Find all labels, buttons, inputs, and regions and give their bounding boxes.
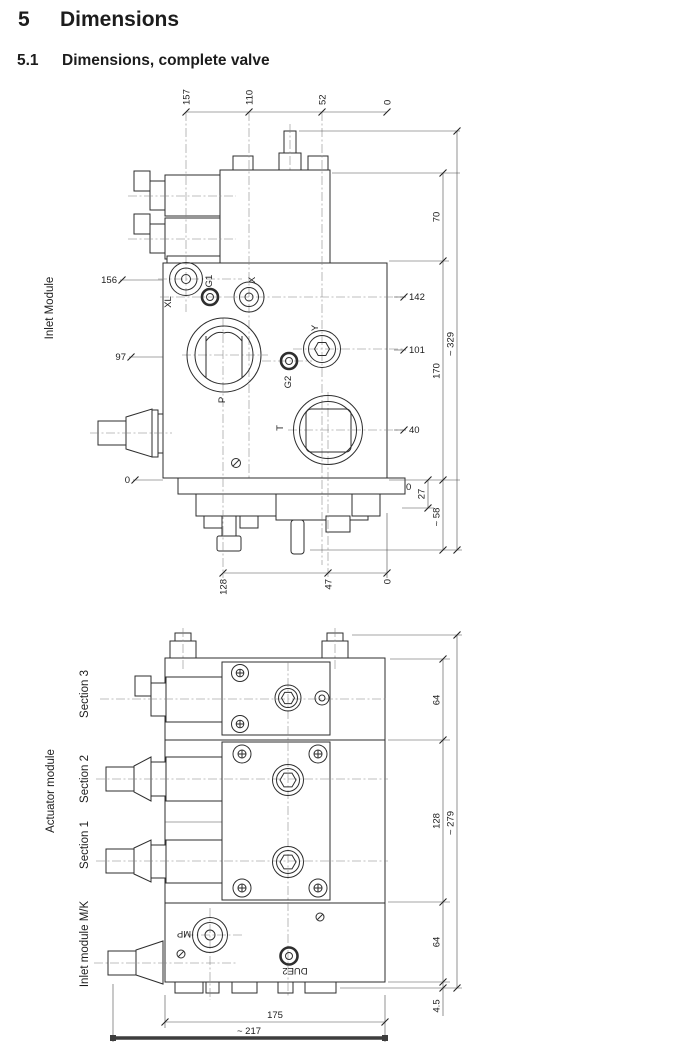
dim-label-70: 70: [432, 212, 443, 223]
solenoid-coil: [165, 175, 220, 216]
solenoid-coil: [165, 218, 220, 259]
dim-label-64-top: 64: [432, 695, 443, 706]
actuator-module-drawing: 64 128 ~ 279 64 4.5 175 ~ 217 MP DUE2 Ac…: [45, 628, 462, 1042]
pilot-block: [220, 170, 330, 263]
section3-label: Section 3: [79, 670, 91, 718]
bottom-plug: [240, 516, 258, 528]
inlet-module-drawing: 157 110 52 0 156 97 0 142 101 40 0 70 17…: [44, 89, 462, 595]
dim-label-64-bottom: 64: [432, 937, 443, 948]
top-plug: [233, 156, 253, 170]
dim-label-279: ~ 279: [446, 811, 457, 835]
dim-label-0-left: 0: [125, 475, 130, 486]
section1-label: Section 1: [79, 821, 91, 869]
module-label-actuator: Actuator module: [45, 749, 57, 833]
section2-label: Section 2: [79, 755, 91, 803]
main-housing: [163, 263, 387, 478]
bottom-plug: [326, 516, 350, 532]
port-label-due2: DUE2: [282, 965, 307, 976]
technical-drawings: 157 110 52 0 156 97 0 142 101 40 0 70 17…: [0, 0, 699, 1055]
dim-label-156: 156: [101, 275, 117, 286]
actuator-plate: [222, 742, 330, 900]
dim-label-101: 101: [409, 345, 425, 356]
dim-label-157: 157: [182, 89, 193, 105]
port-label-p: P: [217, 397, 228, 403]
dim-label-97: 97: [115, 352, 126, 363]
dim-label-217: ~ 217: [237, 1026, 261, 1037]
port-label-t: T: [275, 425, 286, 431]
dim-label-52: 52: [318, 94, 329, 105]
dim-label-0-bottom: 0: [383, 579, 394, 584]
dim-label-175: 175: [267, 1010, 283, 1021]
dim-label-47: 47: [324, 579, 335, 590]
manual-page: 5 Dimensions 5.1 Dimensions, complete va…: [0, 0, 699, 1055]
port-label-g1: G1: [204, 275, 215, 288]
dim-label-4-5: 4.5: [432, 999, 443, 1012]
dim-label-128: 128: [432, 813, 443, 829]
dim-label-329: ~ 329: [446, 332, 457, 356]
valve-body: [98, 131, 405, 554]
dim-label-110: 110: [245, 90, 256, 105]
top-plug: [308, 156, 328, 170]
port-label-mp: MP: [177, 928, 191, 939]
bottom-stud: [291, 520, 304, 554]
port-label-g2: G2: [283, 376, 294, 389]
valve-body: [106, 633, 385, 993]
bottom-plug: [204, 516, 222, 528]
dim-label-27: 27: [417, 489, 428, 500]
module-label-inlet: Inlet Module: [44, 277, 56, 340]
dim-label-0-right: 0: [406, 482, 411, 493]
dim-label-40: 40: [409, 425, 420, 436]
bottom-flange: [178, 478, 405, 494]
inlet-mk-label: Inlet module M/K: [79, 901, 91, 988]
port-label-y: Y: [310, 324, 321, 331]
solenoid-cap: [150, 181, 165, 210]
solenoid-coil: [166, 840, 222, 883]
port-label-xl: XL: [163, 296, 174, 308]
solenoid-cap: [150, 224, 165, 253]
solenoid-coil: [166, 677, 222, 722]
dim-label-0-top: 0: [383, 100, 394, 105]
dim-label-170: 170: [432, 363, 443, 379]
port-label-x: X: [247, 276, 258, 283]
dim-label-128: 128: [219, 579, 230, 595]
dim-label-58: ~ 58: [432, 508, 443, 527]
dim-label-142: 142: [409, 292, 425, 303]
